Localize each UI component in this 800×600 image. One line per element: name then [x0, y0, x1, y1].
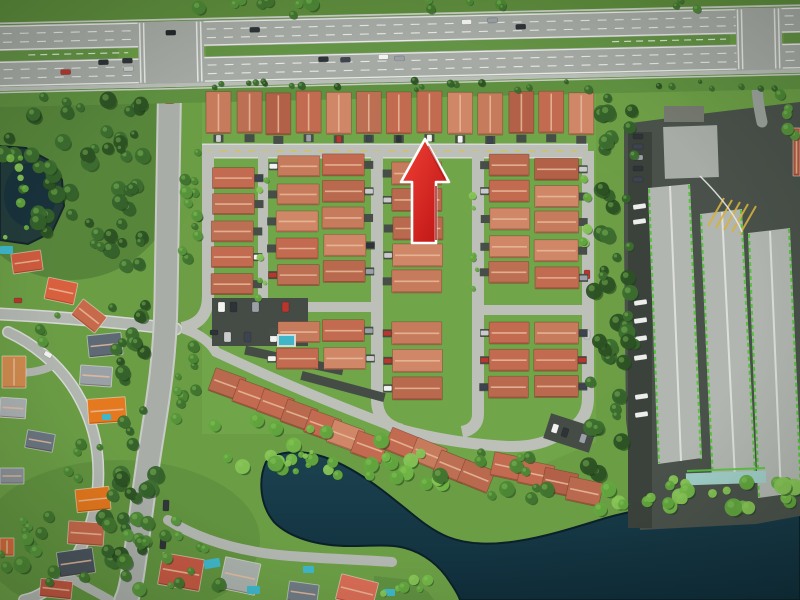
aerial-photograph — [0, 0, 800, 600]
aerial-photo-canvas — [0, 0, 800, 600]
vignette — [0, 0, 800, 600]
